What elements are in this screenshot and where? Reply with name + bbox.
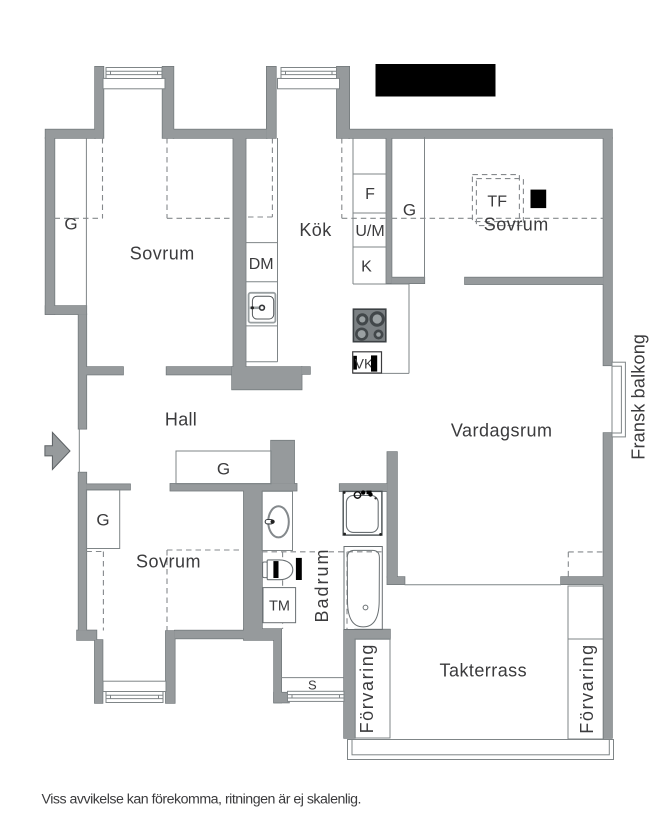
svg-text:Hall: Hall [165, 410, 197, 430]
svg-text:G: G [64, 215, 77, 234]
svg-text:Fransk balkong: Fransk balkong [629, 334, 649, 460]
svg-text:Kök: Kök [299, 220, 332, 240]
svg-text:Förvaring: Förvaring [357, 643, 377, 733]
svg-text:Viss avvikelse kan förekomma,: Viss avvikelse kan förekomma, ritningen … [42, 792, 362, 808]
svg-text:TM: TM [269, 599, 290, 615]
svg-text:G: G [96, 511, 109, 530]
svg-text:F: F [365, 186, 375, 203]
svg-text:G: G [217, 460, 230, 479]
svg-text:K: K [361, 259, 372, 276]
svg-text:Sovrum: Sovrum [136, 551, 201, 571]
svg-text:Badrum: Badrum [312, 547, 332, 622]
svg-text:Takterrass: Takterrass [440, 661, 528, 681]
svg-text:U/M: U/M [355, 223, 384, 240]
svg-text:S: S [308, 677, 317, 692]
svg-text:Förvaring: Förvaring [577, 643, 597, 733]
svg-text:DM: DM [249, 256, 274, 273]
svg-text:Vardagsrum: Vardagsrum [451, 421, 553, 441]
svg-text:TF: TF [487, 193, 507, 210]
svg-text:Sovrum: Sovrum [130, 243, 195, 263]
svg-text:Sovrum: Sovrum [484, 215, 549, 235]
svg-text:G: G [403, 201, 416, 220]
